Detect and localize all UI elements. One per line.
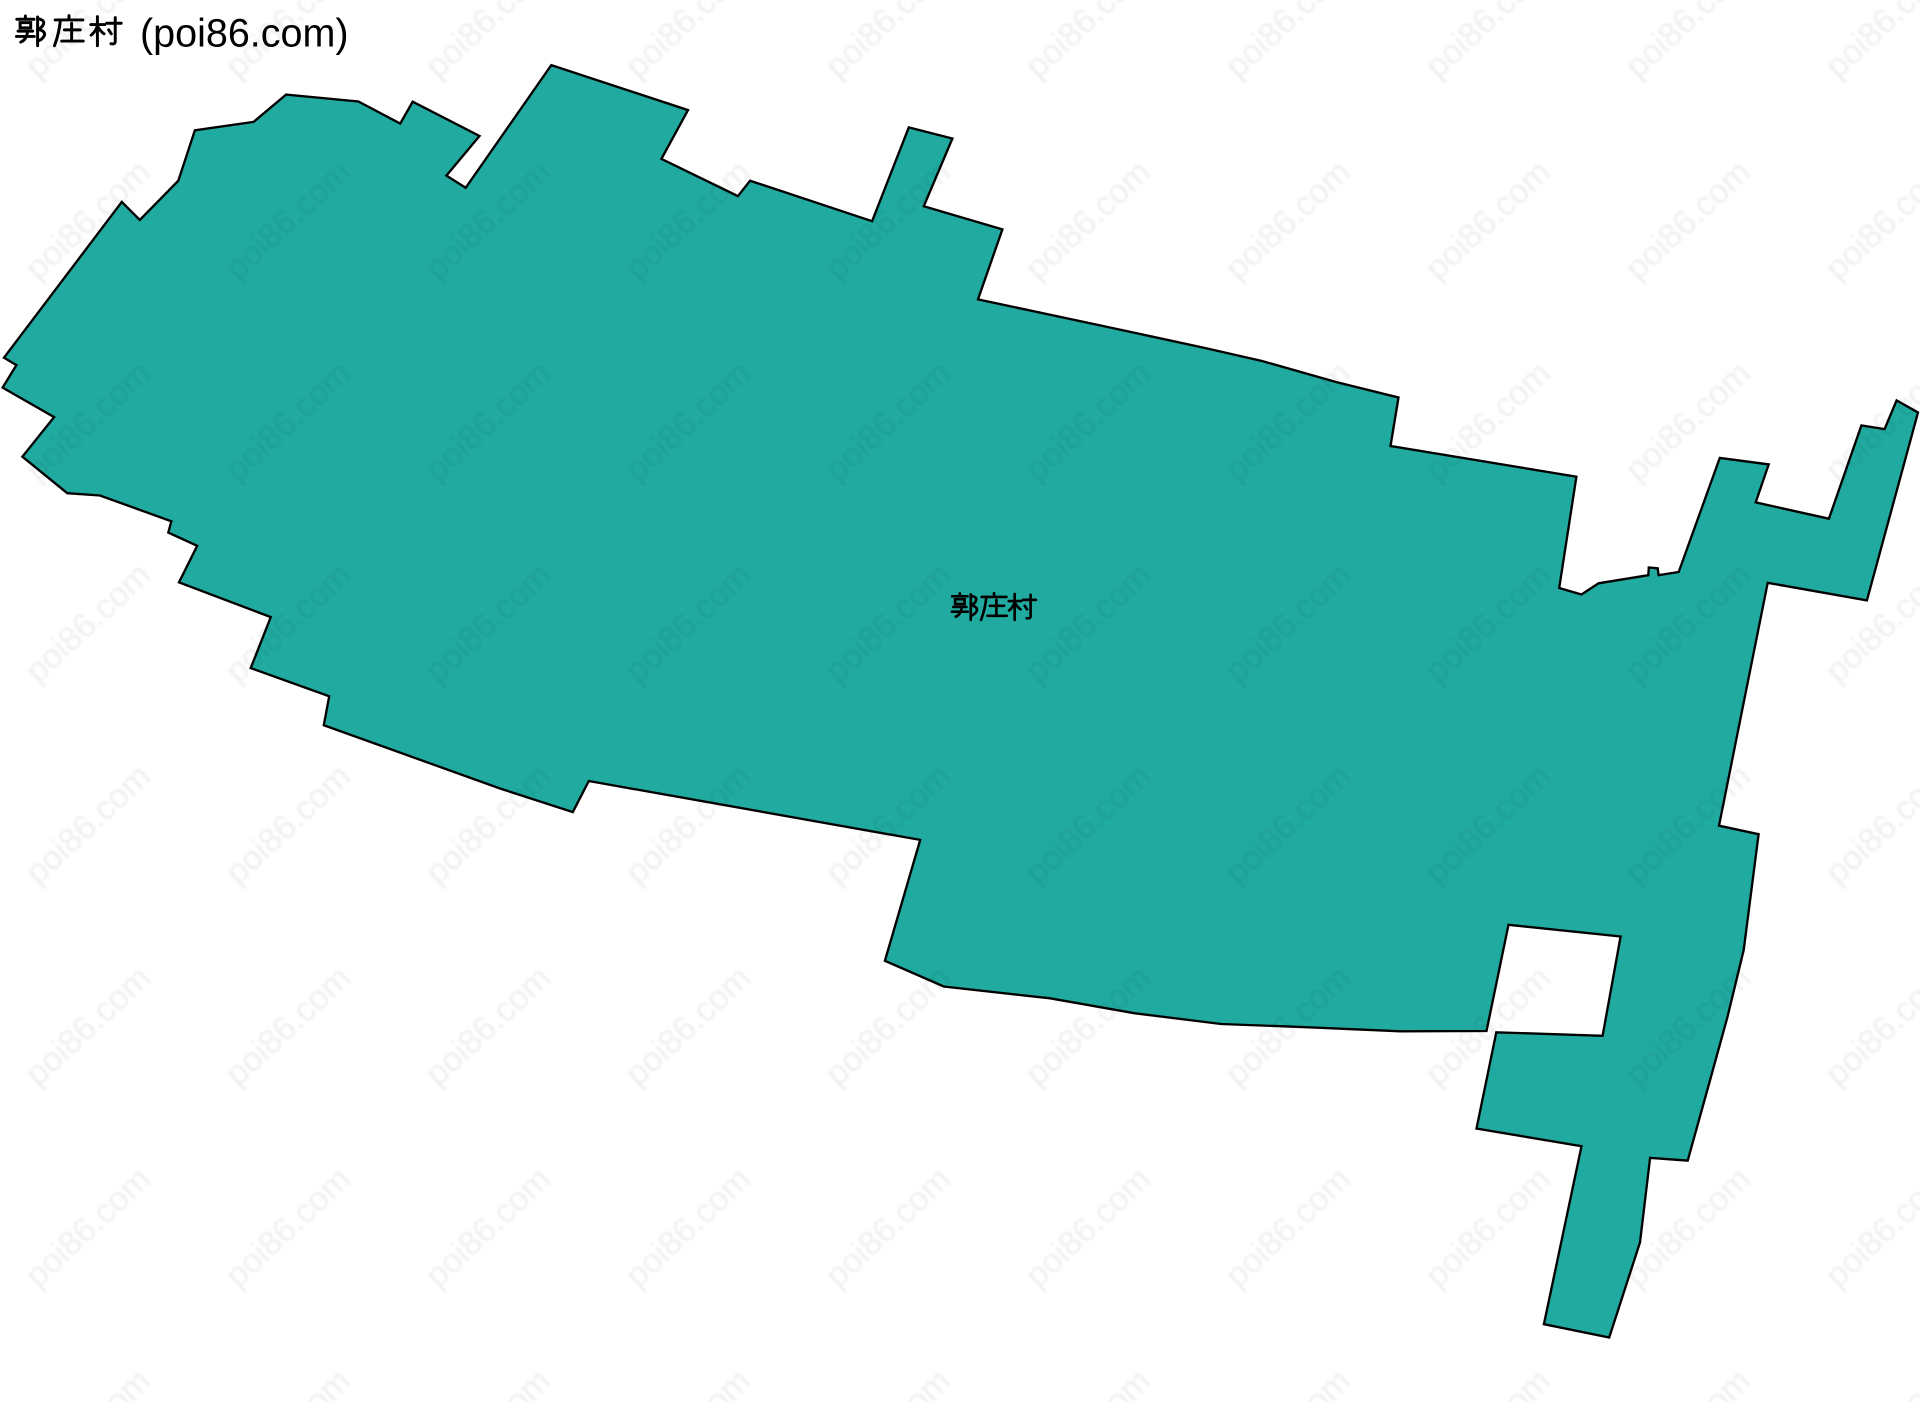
svg-text:(poi86.com): (poi86.com) — [140, 12, 349, 56]
